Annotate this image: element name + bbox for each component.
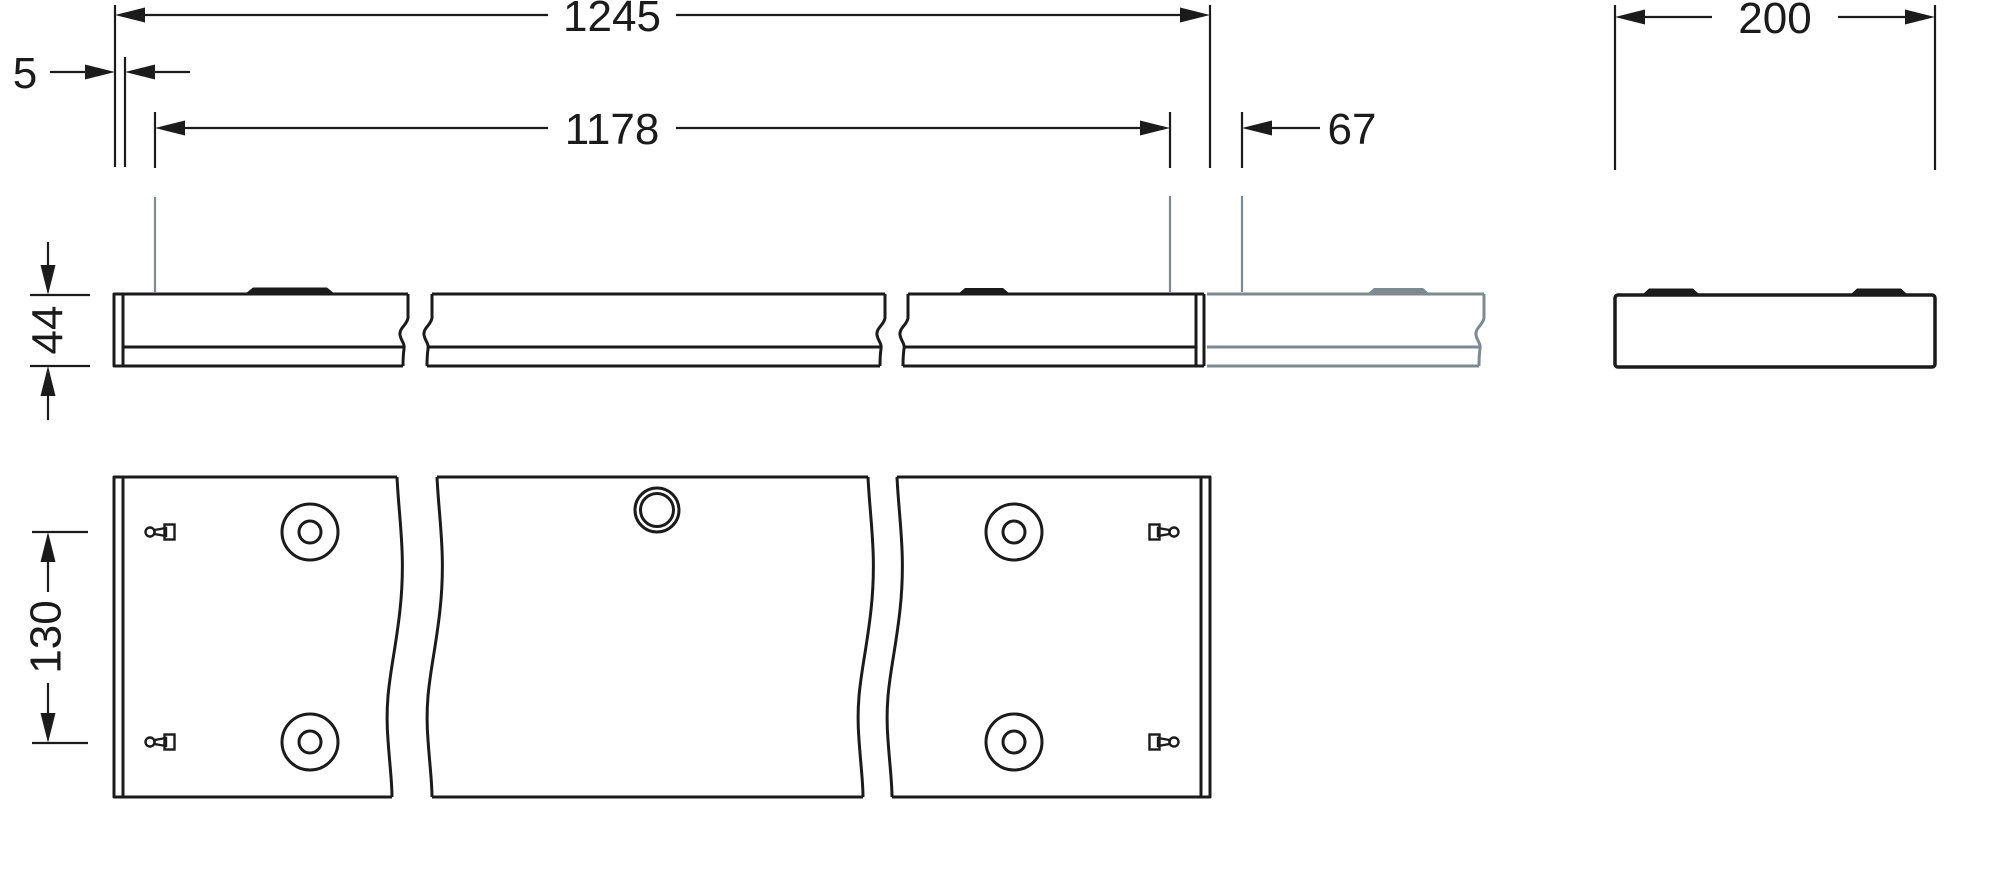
dim-label-mount-row-spacing: 130 xyxy=(22,600,71,673)
arrowhead-down-icon xyxy=(41,265,56,295)
side-view xyxy=(114,288,1484,367)
plan-view xyxy=(114,477,1210,797)
cable-entry xyxy=(635,488,679,532)
profile-end-outline xyxy=(1615,295,1935,367)
mounting-bracket-bump xyxy=(245,288,335,295)
suspension-hole-inner xyxy=(299,731,321,753)
keyhole-circle xyxy=(146,738,155,747)
keyhole-slot-right-top xyxy=(1150,525,1179,540)
break-wavy-line xyxy=(427,477,442,797)
mounting-bracket-bump xyxy=(1642,289,1700,296)
break-wavy-line xyxy=(387,477,402,797)
dimension-suspension-spacing: 1178 xyxy=(155,105,1170,292)
keyhole-slot-left-bottom xyxy=(146,735,175,750)
keyhole-slot-left-top xyxy=(146,525,175,540)
break-line xyxy=(900,294,908,366)
drawing-canvas: 1245 5 1178 67 200 xyxy=(0,0,2000,892)
dimension-overall-length: 1245 xyxy=(115,0,1210,168)
break-wavy-line xyxy=(858,477,873,797)
arrowhead-left-icon xyxy=(125,65,155,80)
dimension-end-gap: 5 xyxy=(13,49,190,167)
profile-segment-outline xyxy=(114,294,408,366)
arrowhead-right-icon xyxy=(1180,8,1210,23)
dimension-profile-height: 44 xyxy=(24,242,91,420)
break-line xyxy=(877,294,885,366)
dim-label-suspension-spacing: 1178 xyxy=(565,105,660,154)
suspension-hole-inner xyxy=(1003,521,1025,543)
mounting-bracket-bump xyxy=(1367,288,1430,294)
arrowhead-left-icon xyxy=(1242,121,1272,136)
suspension-hole-inner xyxy=(1003,731,1025,753)
break-wavy-line xyxy=(887,477,902,797)
arrowhead-right-icon xyxy=(85,65,115,80)
suspension-hole-outer xyxy=(282,504,338,560)
dim-label-profile-height: 44 xyxy=(24,306,73,355)
keyhole-slot-right-bottom xyxy=(1150,735,1179,750)
keyhole-circle xyxy=(1170,738,1179,747)
keyhole-circle xyxy=(146,528,155,537)
dimension-joint-offset: 67 xyxy=(1242,105,1376,292)
continuation-module xyxy=(1207,288,1484,366)
suspension-hole-outer xyxy=(986,714,1042,770)
mounting-bracket-bump xyxy=(1850,289,1908,296)
suspension-hole-inner xyxy=(299,521,321,543)
keyhole-circle xyxy=(1170,528,1179,537)
arrowhead-left-icon xyxy=(155,121,185,136)
arrowhead-up-icon xyxy=(41,532,56,562)
suspension-hole-outer xyxy=(986,504,1042,560)
dim-label-overall-length: 1245 xyxy=(563,0,661,41)
break-line xyxy=(1476,294,1484,366)
end-view xyxy=(1615,289,1935,368)
dimension-profile-width: 200 xyxy=(1615,0,1935,170)
arrowhead-right-icon xyxy=(1905,10,1935,25)
dim-label-end-gap: 5 xyxy=(13,49,37,98)
cable-entry-inner xyxy=(641,494,674,527)
suspension-hole-outer xyxy=(282,714,338,770)
plan-outline xyxy=(892,477,1210,797)
break-line xyxy=(424,294,432,366)
break-line xyxy=(400,294,408,366)
arrowhead-left-icon xyxy=(115,8,145,23)
dimension-mount-row-spacing: 130 xyxy=(22,532,89,743)
arrowhead-up-icon xyxy=(41,366,56,396)
arrowhead-down-icon xyxy=(41,713,56,743)
arrowhead-right-icon xyxy=(1140,121,1170,136)
plan-outline xyxy=(114,477,397,797)
dim-label-joint-offset: 67 xyxy=(1328,105,1377,154)
technical-drawing: 1245 5 1178 67 200 xyxy=(0,0,2000,892)
mounting-bracket-bump xyxy=(958,288,1010,294)
arrowhead-left-icon xyxy=(1615,10,1645,25)
dim-label-profile-width: 200 xyxy=(1738,0,1811,43)
